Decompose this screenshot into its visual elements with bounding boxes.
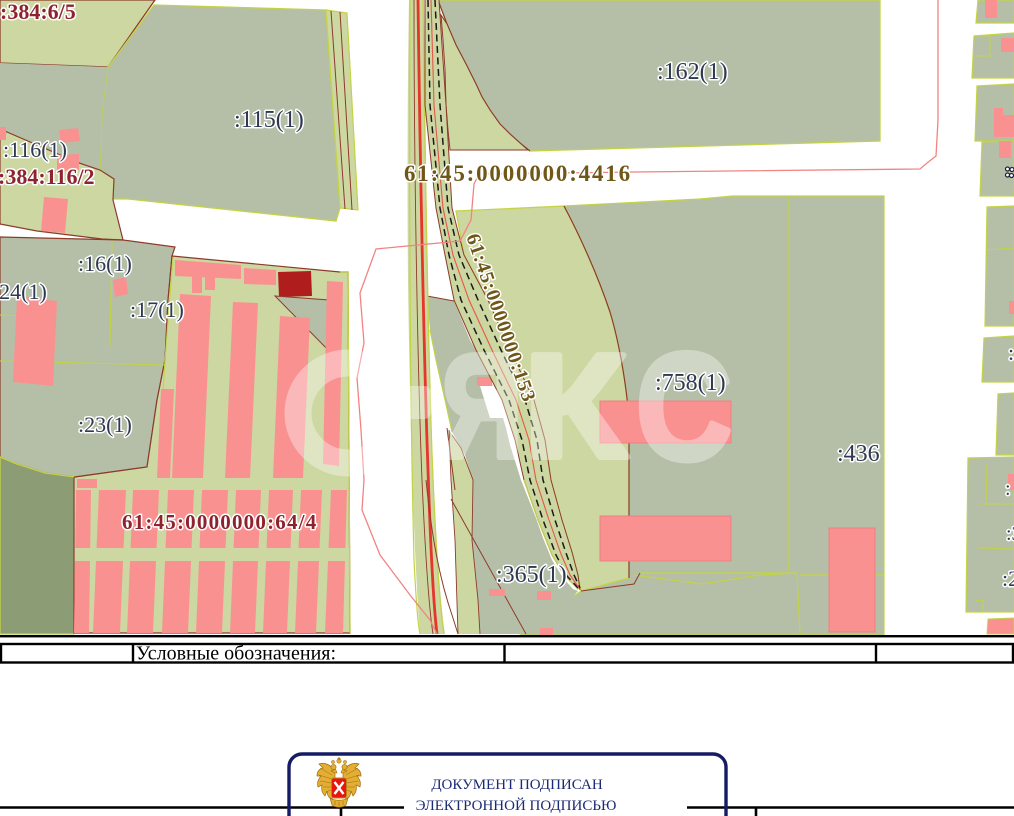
svg-text:Условные обозначения:: Условные обозначения:	[136, 643, 336, 665]
svg-text::436: :436	[837, 441, 880, 467]
svg-text:ЭЛЕКТРОННОЙ ПОДПИСЬЮ: ЭЛЕКТРОННОЙ ПОДПИСЬЮ	[416, 797, 617, 814]
svg-text::365(1): :365(1)	[496, 562, 567, 588]
svg-text::116(1): :116(1)	[3, 137, 67, 162]
svg-text:С: С	[636, 322, 732, 492]
svg-text:ДОКУМЕНТ ПОДПИСАН: ДОКУМЕНТ ПОДПИСАН	[431, 777, 603, 793]
svg-text::17(1): :17(1)	[130, 297, 184, 322]
svg-text:61:45:0000000:4416: 61:45:0000000:4416	[404, 161, 632, 186]
svg-text::3: :3	[1006, 523, 1014, 545]
svg-text::162(1): :162(1)	[657, 59, 728, 85]
svg-text::24(1): :24(1)	[0, 279, 47, 304]
svg-text::384:116/2: :384:116/2	[0, 164, 95, 189]
svg-text::384:6/5: :384:6/5	[0, 0, 76, 24]
svg-text:К: К	[523, 324, 628, 489]
svg-text::2: :2	[1002, 566, 1014, 591]
svg-text::23(1): :23(1)	[78, 412, 132, 437]
svg-text::115(1): :115(1)	[234, 107, 304, 133]
svg-text:61:45:0000000:64/4: 61:45:0000000:64/4	[122, 510, 317, 534]
svg-text::758(1): :758(1)	[655, 370, 726, 396]
svg-text::16(1): :16(1)	[78, 251, 132, 276]
svg-text::3: :3	[1008, 340, 1014, 365]
svg-text::: :	[1005, 478, 1011, 500]
